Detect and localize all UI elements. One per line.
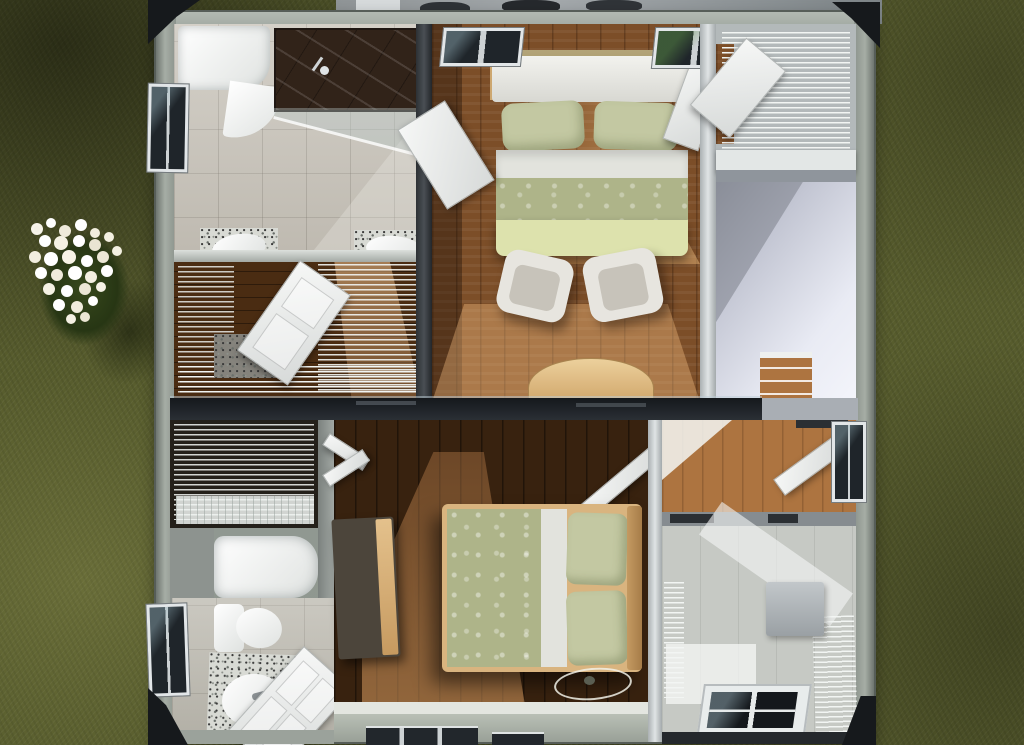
shower-head	[320, 66, 329, 75]
armchair-seat	[508, 263, 562, 312]
house	[156, 4, 874, 742]
stair-header-wall	[716, 170, 856, 182]
bed-duvet	[496, 178, 688, 220]
bush-white-flowers	[34, 226, 40, 232]
exterior-wall-right	[854, 16, 874, 740]
bathroom2-corner-wall	[170, 528, 214, 604]
bed-pillow-left	[501, 100, 585, 152]
skylight-glass	[707, 692, 798, 728]
bonus-wire-shelf-left	[664, 582, 684, 698]
armchair-seat	[597, 262, 650, 312]
ceiling-light-center	[584, 676, 595, 685]
armchair-right	[580, 246, 665, 325]
master-bathtub	[178, 26, 270, 90]
bedroom2-baseboard	[334, 702, 648, 714]
bathroom-window	[147, 84, 189, 173]
wall-doorway-slit	[356, 401, 416, 405]
bed-sheet-fold	[496, 150, 688, 178]
interior-wall-light	[648, 420, 662, 742]
aerial-floorplan-render	[0, 0, 1024, 745]
wall-doorway-slit	[576, 403, 646, 407]
bed2-pillow-top	[566, 512, 628, 586]
bedroom-window-left	[440, 28, 524, 66]
bed2-headboard	[627, 506, 642, 670]
bed2-pillow-bottom	[566, 590, 629, 666]
flowering-bush	[26, 214, 142, 362]
central-dark-wall	[170, 398, 762, 420]
lower-floor-window	[366, 726, 478, 745]
shower-dark-tile	[274, 28, 424, 112]
bed2-duvet	[447, 509, 541, 667]
bed2-sheet-fold	[541, 509, 567, 667]
closet-shelf-board	[176, 496, 314, 524]
interior-wall-dark	[416, 24, 432, 402]
bonus-cabinet	[766, 582, 824, 636]
wall-slot	[768, 514, 798, 523]
lower-floor-window-small	[492, 732, 544, 745]
bathroom2-bottom-wall	[172, 730, 334, 744]
dresser	[331, 516, 400, 659]
central-wall-right	[762, 398, 858, 420]
door-panel	[252, 313, 309, 370]
bathtub2	[214, 536, 318, 598]
bathroom2-window	[146, 603, 189, 696]
bonus-room-dark-edge	[662, 732, 858, 744]
linen-closet-base	[716, 150, 856, 172]
bonus-room-window	[832, 422, 866, 502]
